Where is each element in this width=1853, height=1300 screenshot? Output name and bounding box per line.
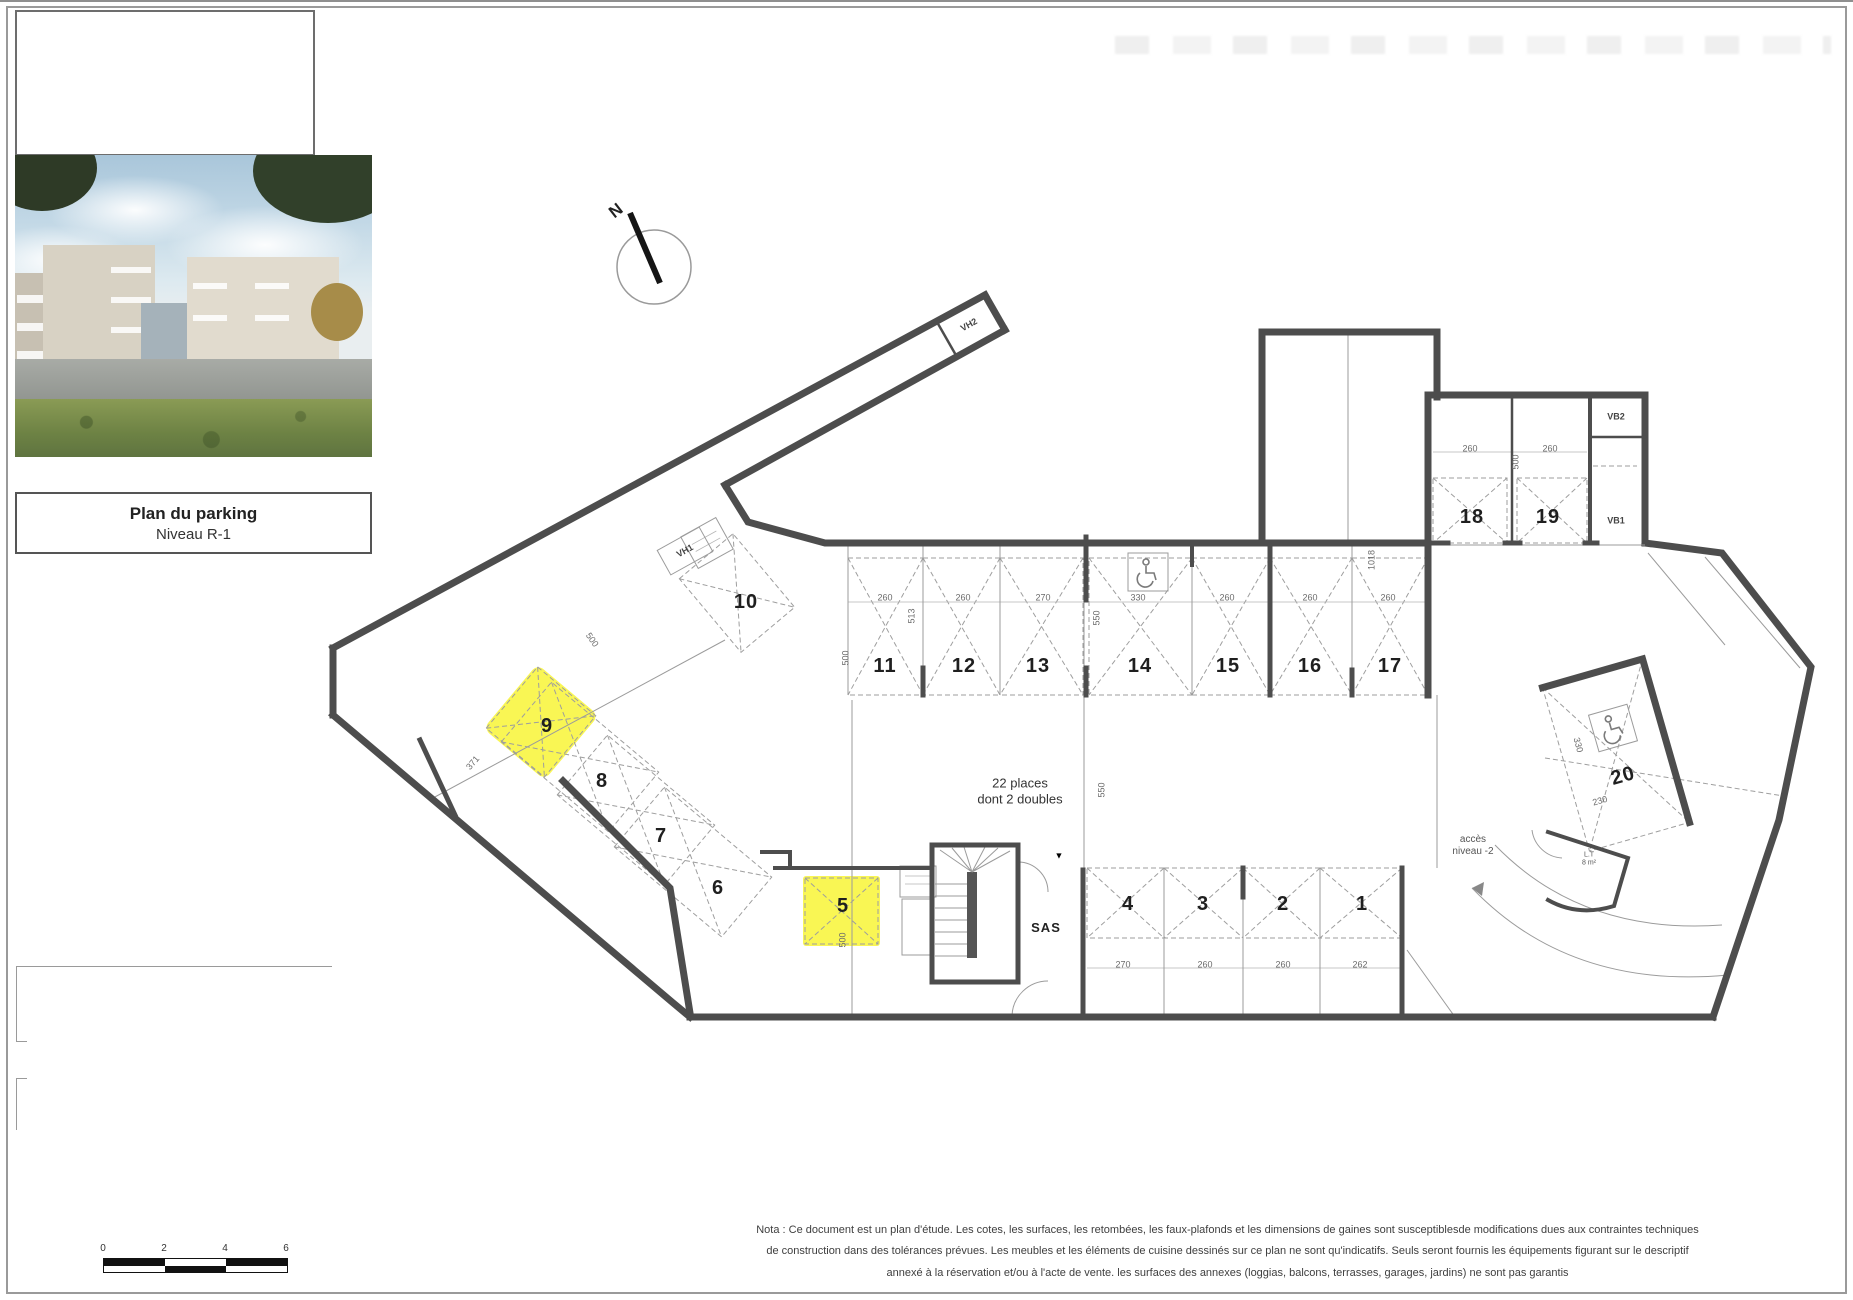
partial-frame-line: [16, 966, 332, 967]
plan-annotation-l.t-8-m²: L.T 8 m²: [1582, 852, 1596, 869]
handicap-icon: [1128, 553, 1168, 591]
parking-space-label-15: 15: [1216, 654, 1240, 678]
nota-text: Nota : Ce document est un plan d'étude. …: [620, 1220, 1835, 1284]
dimension-label-260: 260: [1197, 960, 1212, 971]
dimension-label-260: 260: [1542, 444, 1557, 455]
scale-bar-graphic: [103, 1258, 288, 1273]
dimension-label-260: 260: [1380, 593, 1395, 604]
plan-annotation-accès-niveau--2: accès niveau -2: [1452, 834, 1493, 858]
parking-plan-page: { "title_block": { "line1": "Plan du par…: [0, 0, 1853, 1300]
dimension-label-500: 500: [1511, 454, 1522, 469]
dimension-label-270: 270: [1035, 593, 1050, 604]
parking-space-label-17: 17: [1378, 654, 1402, 678]
ramp-curves: [1472, 830, 1728, 977]
staircase: [900, 847, 1048, 1016]
lt-room: [1548, 832, 1628, 910]
handicap-icon: [1589, 704, 1638, 752]
scale-tick-label: 6: [283, 1243, 289, 1254]
parking-space-label-10: 10: [734, 590, 758, 614]
partial-frame-line: [16, 1041, 27, 1042]
parking-space-label-6: 6: [712, 876, 724, 900]
dimension-label-260: 260: [955, 593, 970, 604]
dimension-label-513: 513: [907, 608, 918, 623]
dimension-label-260: 260: [1275, 960, 1290, 971]
parking-space-label-5: 5: [837, 894, 849, 918]
partial-frame-line: [16, 966, 17, 1042]
parking-space-label-18: 18: [1460, 505, 1484, 529]
plan-annotation-22-places-dont-2-doubles: 22 places dont 2 doubles: [977, 775, 1062, 806]
plan-annotation-▼: ▼: [1055, 851, 1064, 862]
scale-bar: 0 2 4 6: [103, 1243, 289, 1277]
dimension-label-260: 260: [1462, 444, 1477, 455]
plan-annotation-sas: SAS: [1031, 920, 1061, 936]
dimension-label-550: 550: [1092, 610, 1103, 625]
plan-annotation-vb2: VB2: [1607, 412, 1625, 423]
plan-annotation-vb1: VB1: [1607, 516, 1625, 527]
dimension-label-262: 262: [1352, 960, 1367, 971]
parking-space-label-1: 1: [1356, 892, 1368, 916]
scale-tick-label: 0: [100, 1243, 106, 1254]
nota-line-1: Nota : Ce document est un plan d'étude. …: [620, 1220, 1835, 1241]
parking-space-label-9: 9: [541, 714, 553, 738]
parking-space-label-16: 16: [1298, 654, 1322, 678]
scale-tick-label: 2: [161, 1243, 167, 1254]
parking-space-label-3: 3: [1197, 892, 1209, 916]
parking-space-label-2: 2: [1277, 892, 1289, 916]
parking-space-label-4: 4: [1122, 892, 1134, 916]
parking-space-label-19: 19: [1536, 505, 1560, 529]
parking-space-label-7: 7: [655, 824, 667, 848]
parking-space-label-14: 14: [1128, 654, 1152, 678]
dimension-label-550: 550: [1097, 782, 1108, 797]
nota-line-3: annexé à la réservation et/ou à l'acte d…: [620, 1263, 1835, 1284]
dimension-label-330: 330: [1130, 593, 1145, 604]
scale-tick-label: 4: [222, 1243, 228, 1254]
dimension-label-260: 260: [1219, 593, 1234, 604]
dimension-label-1018: 1018: [1367, 550, 1378, 570]
dimension-label-500: 500: [841, 650, 852, 665]
parking-space-label-13: 13: [1026, 654, 1050, 678]
partial-frame-line: [16, 1078, 27, 1079]
parking-space-label-8: 8: [596, 769, 608, 793]
nota-line-2: de construction dans des tolérances prév…: [620, 1241, 1835, 1262]
dimension-label-260: 260: [877, 593, 892, 604]
parking-space-label-11: 11: [873, 654, 896, 678]
dimension-label-500: 500: [838, 932, 849, 947]
dimension-label-270: 270: [1115, 960, 1130, 971]
partial-frame-line: [16, 1078, 17, 1130]
dimension-label-260: 260: [1302, 593, 1317, 604]
parking-space-label-12: 12: [952, 654, 976, 678]
floor-plan-drawing: [0, 0, 1853, 1300]
